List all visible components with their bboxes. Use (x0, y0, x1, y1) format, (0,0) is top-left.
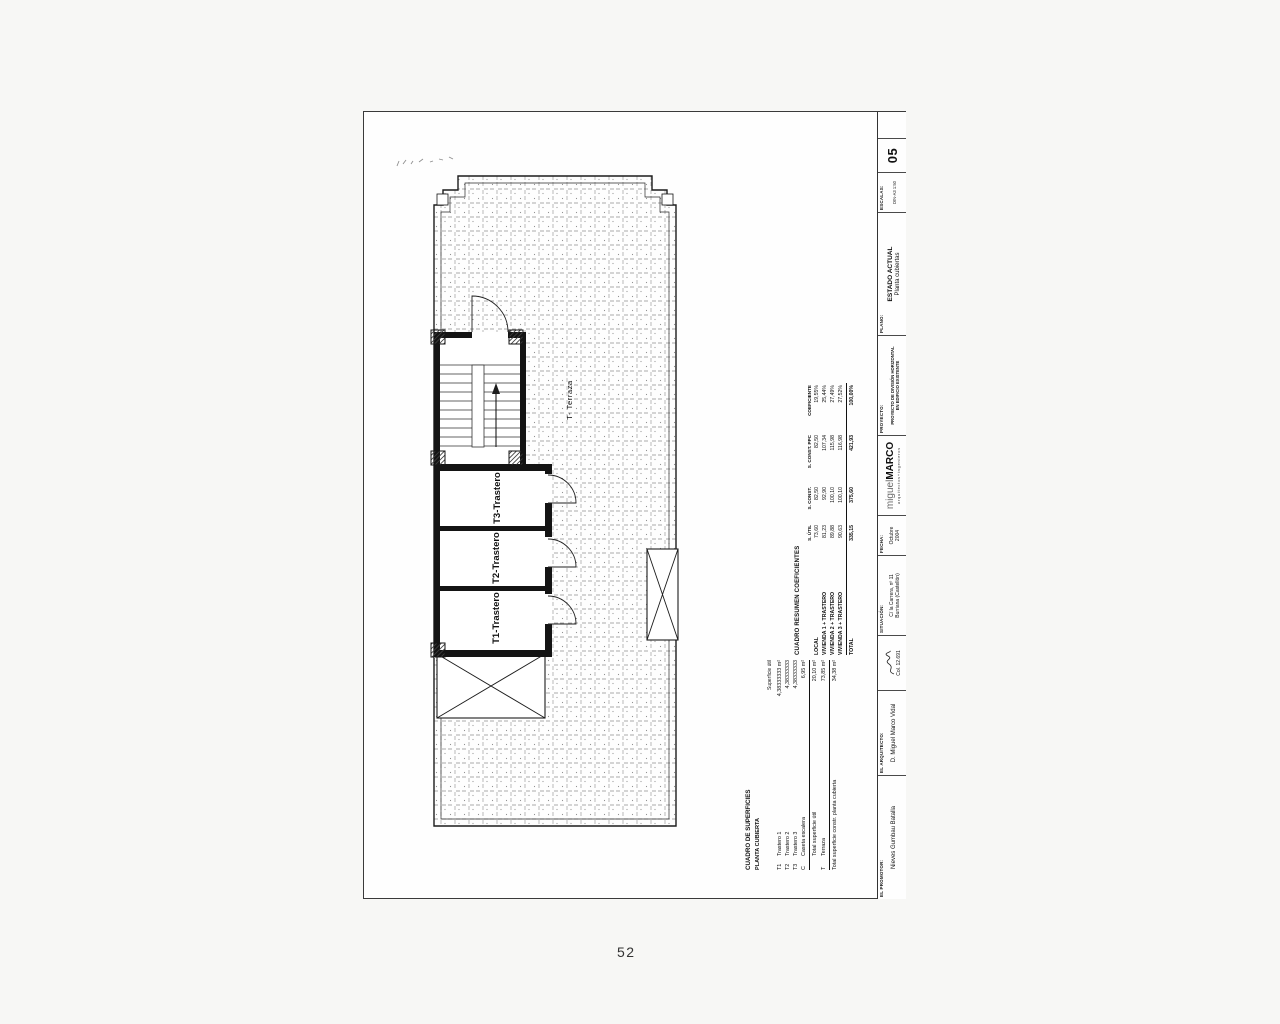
coef-cell-util: 90,63 (837, 525, 845, 563)
firm-logo: miguelMARCO (886, 442, 896, 509)
titleblock-scale: ESCALAS: DIN-A3 1:50 (878, 172, 906, 212)
coef-cell-coef: 19,55% (813, 385, 821, 435)
surface-header-spacer2 (767, 724, 775, 856)
promoter-name: Nieves Gumbau Batalla (891, 806, 898, 869)
coef-header-name (806, 563, 813, 655)
surface-terraza-row: T Terraza 73,85 m² (820, 660, 828, 870)
coef-header-ppc: S. CONST. PPC (806, 435, 813, 487)
plano-label: PLANO: (879, 315, 884, 333)
coef-cell-coef: 27,52% (837, 385, 845, 435)
surface-cell-name: Terraza (820, 724, 828, 856)
room-label-t2: T2-Trastero (491, 532, 502, 584)
coef-row: VIVIENDA 3 + TRASTERO 90,63 100,10 116,9… (837, 383, 845, 655)
surface-row: T2 Trastero 2 4,38333333 (784, 660, 792, 870)
coef-cell-util: 81,23 (821, 525, 829, 563)
surface-cell-code: T (820, 856, 828, 870)
coef-row: VIVIENDA 1 + TRASTERO 81,23 92,90 107,34… (821, 383, 829, 655)
surface-cell-code: T3 (792, 856, 800, 870)
logo-subtitle: arquitectos+ingenieros (897, 447, 901, 504)
surface-row: T1 Trastero 1 4,38333333 m² (776, 660, 784, 870)
page-number: 52 (617, 944, 636, 960)
coef-total-row: TOTAL 335,15 375,60 421,93 100,00% (846, 383, 856, 655)
surface-row: C Caseta escalera 6,95 m² (800, 660, 808, 870)
surface-total-util-label: Total superficie útil (811, 724, 819, 856)
scanned-page: { "page": { "number": "52" }, "plan": { … (0, 0, 1280, 1024)
coef-total-const: 375,60 (848, 487, 856, 525)
coef-cell-util: 73,60 (813, 525, 821, 563)
coef-cell-const: 92,90 (821, 487, 829, 525)
surface-cell-value: 73,85 m² (820, 660, 828, 724)
coef-cell-coef: 27,49% (829, 385, 837, 435)
project-label: PROYECTO: (879, 405, 884, 433)
surface-cell-value: 4,38333333 m² (776, 660, 784, 724)
coef-cell-name: VIVIENDA 3 + TRASTERO (837, 563, 845, 655)
title-block: EL PROMOTOR: Nieves Gumbau Batalla EL AR… (877, 112, 906, 899)
coef-total-name: TOTAL (848, 563, 856, 655)
titleblock-date: FECHA: Octubre 2004 (878, 515, 906, 555)
coef-header-util: S. ÚTIL (806, 525, 813, 563)
stair-stringer (472, 365, 484, 447)
coef-header-const: S. CONST. (806, 487, 813, 525)
surface-total-util-row: Total superficie útil 20,10 m² (809, 660, 819, 870)
coef-header-coef: COEFICIENTE (806, 385, 813, 435)
coef-cell-ppc: 82,50 (813, 435, 821, 487)
coef-total-ppc: 421,93 (848, 435, 856, 487)
coef-cell-const: 100,10 (829, 487, 837, 525)
coef-row: VIVIENDA 2 + TRASTERO 89,88 100,10 115,9… (829, 383, 837, 655)
logo-light-text: miguel (885, 480, 896, 509)
coef-row: LOCAL 73,60 82,50 82,50 19,55% (813, 383, 821, 655)
side-shaft (647, 549, 678, 640)
titleblock-signature: Col. 12.691 (878, 635, 906, 690)
situation-label: SITUACIÓN: (879, 605, 884, 633)
surface-cell-code: T2 (784, 856, 792, 870)
plano-title: ESTADO ACTUAL (887, 247, 894, 302)
coef-header-row: S. ÚTIL S. CONST. S. CONST. PPC COEFICIE… (806, 383, 813, 655)
surface-table-title: CUADRO DE SUPERFICIES (745, 660, 752, 870)
coef-cell-ppc: 107,34 (821, 435, 829, 487)
coefficients-summary-table: CUADRO RESUMEN COEFICIENTES S. ÚTIL S. C… (795, 383, 872, 655)
pencil-scribble (397, 157, 453, 166)
surface-cell-name: Trastero 2 (784, 724, 792, 856)
architect-name: D. Miguel Marco Vidal (891, 704, 898, 763)
sheet-number: 05 (885, 148, 900, 163)
surface-cell-value: 6,95 m² (800, 660, 808, 724)
titleblock-architect: EL ARQUITECTO: D. Miguel Marco Vidal (878, 690, 906, 775)
titleblock-spacer (878, 112, 906, 138)
architect-label: EL ARQUITECTO: (879, 732, 884, 773)
coef-cell-name: LOCAL (813, 563, 821, 655)
surface-cell-code: C (800, 856, 808, 870)
terrace-label: T- Terraza (565, 380, 574, 420)
surface-header-row: Superficie útil (767, 660, 775, 870)
situation-city: Burriana (Castellón) (895, 573, 901, 617)
scale-value: DIN-A3 1:50 (892, 181, 898, 204)
surface-row: T3 Trastero 3 4,38333333 (792, 660, 800, 870)
coef-cell-coef: 25,44% (821, 385, 829, 435)
coef-table-title: CUADRO RESUMEN COEFICIENTES (795, 383, 801, 655)
surface-table-subtitle: PLANTA CUBIERTA (755, 660, 761, 870)
coef-total-coef: 100,00% (848, 385, 856, 435)
scale-label: ESCALAS: (879, 185, 884, 210)
date-label: FECHA: (879, 535, 884, 553)
architect-signature (885, 650, 896, 676)
surface-total-const-row: Total superficie constr. planta cubierta… (829, 660, 839, 870)
coef-cell-util: 89,88 (829, 525, 837, 563)
date-year: 2004 (895, 530, 901, 541)
coef-cell-name: VIVIENDA 2 + TRASTERO (829, 563, 837, 655)
titleblock-logo: miguelMARCO arquitectos+ingenieros (878, 435, 906, 515)
surface-areas-table: CUADRO DE SUPERFICIES PLANTA CUBIERTA Su… (745, 660, 870, 870)
surface-header-spacer (767, 856, 775, 870)
surface-cell-name: Trastero 1 (776, 724, 784, 856)
room-label-t3: T3-Trastero (492, 472, 503, 524)
titleblock-situation: SITUACIÓN: C/ la Carrera, nº 11 Burriana… (878, 555, 906, 635)
project-name-line2: EN EDIFICIO EXISTENTE (895, 361, 901, 411)
surface-cell-code: T1 (776, 856, 784, 870)
promoter-label: EL PROMOTOR: (879, 860, 884, 897)
coef-cell-ppc: 115,98 (829, 435, 837, 487)
surface-total-const-value: 34,38 m² (831, 660, 839, 724)
coef-cell-name: VIVIENDA 1 + TRASTERO (821, 563, 829, 655)
coef-total-util: 335,15 (848, 525, 856, 563)
titleblock-plano: PLANO: ESTADO ACTUAL Planta cubiertas (878, 212, 906, 335)
coef-table-grid: S. ÚTIL S. CONST. S. CONST. PPC COEFICIE… (806, 383, 856, 655)
surface-cell-value: 4,38333333 (784, 660, 792, 724)
surface-value-header: Superficie útil (767, 660, 775, 724)
titleblock-promoter: EL PROMOTOR: Nieves Gumbau Batalla (878, 775, 906, 899)
surface-cell-value: 4,38333333 (792, 660, 800, 724)
coef-cell-const: 82,50 (813, 487, 821, 525)
plano-subtitle: Planta cubiertas (895, 252, 901, 295)
surface-cell-name: Caseta escalera (800, 724, 808, 856)
surface-total-util-value: 20,10 m² (811, 660, 819, 724)
surface-cell-name: Trastero 3 (792, 724, 800, 856)
coef-cell-ppc: 116,98 (837, 435, 845, 487)
titleblock-project: PROYECTO: PROYECTO DE DIVISIÓN HORIZONTA… (878, 335, 906, 435)
logo-bold-text: MARCO (885, 442, 896, 480)
architect-college-number: Col. 12.691 (896, 650, 902, 676)
titleblock-sheet-number: 05 (878, 138, 906, 172)
surface-total-spacer (811, 856, 819, 870)
coef-cell-const: 100,10 (837, 487, 845, 525)
room-label-t1: T1-Trastero (491, 592, 502, 644)
surface-total-const-label: Total superficie constr. planta cubierta (831, 724, 839, 870)
patio-shaft (437, 654, 545, 718)
surface-table-grid: Superficie útil T1 Trastero 1 4,38333333… (767, 660, 839, 870)
